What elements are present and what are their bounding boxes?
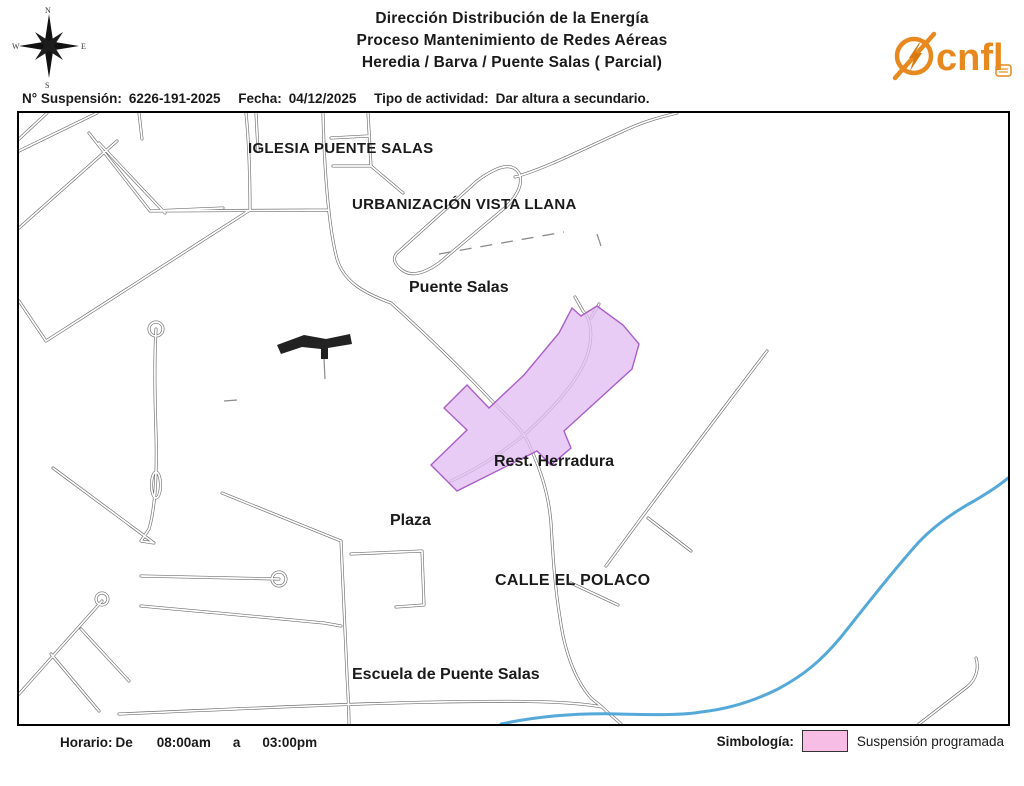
map-label-urbanizacion: URBANIZACIÓN VISTA LLANA xyxy=(352,196,577,213)
fecha-label: Fecha: xyxy=(238,91,282,106)
map-label-escuela: Escuela de Puente Salas xyxy=(352,666,540,684)
suspension-number: 6226-191-2025 xyxy=(129,91,221,106)
map-label-iglesia: IGLESIA PUENTE SALAS xyxy=(248,140,433,157)
horario-label: Horario: xyxy=(60,735,113,750)
horario-start: 08:00am xyxy=(157,735,211,750)
horario-de: De xyxy=(116,735,133,750)
simbologia-label: Simbología: xyxy=(717,734,794,749)
title-line-1: Dirección Distribución de la Energía xyxy=(0,8,1024,30)
fecha-value: 04/12/2025 xyxy=(289,91,357,106)
map-label-rest-herradura: Rest. Herradura xyxy=(494,453,614,471)
page-title: Dirección Distribución de la Energía Pro… xyxy=(0,8,1024,74)
logo-text: cnfl xyxy=(936,37,1004,79)
map-label-calle-polaco: CALLE EL POLACO xyxy=(495,572,650,590)
title-line-2: Proceso Mantenimiento de Redes Aéreas xyxy=(0,30,1024,52)
title-line-3: Heredia / Barva / Puente Salas ( Parcial… xyxy=(0,52,1024,74)
legend-swatch xyxy=(802,730,848,752)
tipo-label: Tipo de actividad: xyxy=(374,91,489,106)
dashed-road xyxy=(439,232,564,254)
map-canvas: IGLESIA PUENTE SALAS URBANIZACIÓN VISTA … xyxy=(17,111,1010,726)
map-label-puente-salas: Puente Salas xyxy=(409,279,509,297)
page: { "header": { "title_lines": [ "Direcció… xyxy=(0,0,1024,786)
compass-s: S xyxy=(45,81,49,90)
river xyxy=(501,478,1008,724)
info-bar: N° Suspensión:6226-191-2025 Fecha:04/12/… xyxy=(22,91,649,106)
suspension-label: N° Suspensión: xyxy=(22,91,122,106)
schedule-bar: Horario:De08:00ama03:00pm xyxy=(60,735,317,750)
horario-a: a xyxy=(233,735,241,750)
map-label-plaza: Plaza xyxy=(390,512,431,530)
legend: Simbología: Suspensión programada xyxy=(717,730,1004,752)
building-footprint xyxy=(277,334,352,359)
tipo-value: Dar altura a secundario. xyxy=(496,91,650,106)
cnfl-logo: cnfl xyxy=(888,22,1016,89)
legend-item-label: Suspensión programada xyxy=(857,734,1004,749)
horario-end: 03:00pm xyxy=(262,735,317,750)
